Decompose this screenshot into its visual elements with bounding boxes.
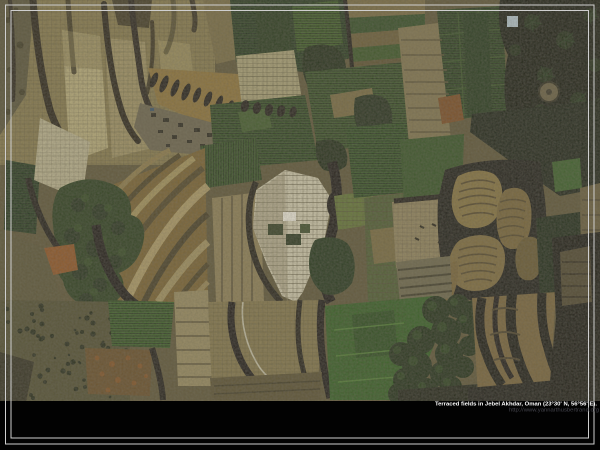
- svg-text:http://www.yannarthusbertrand.: http://www.yannarthusbertrand.org: [509, 408, 599, 414]
